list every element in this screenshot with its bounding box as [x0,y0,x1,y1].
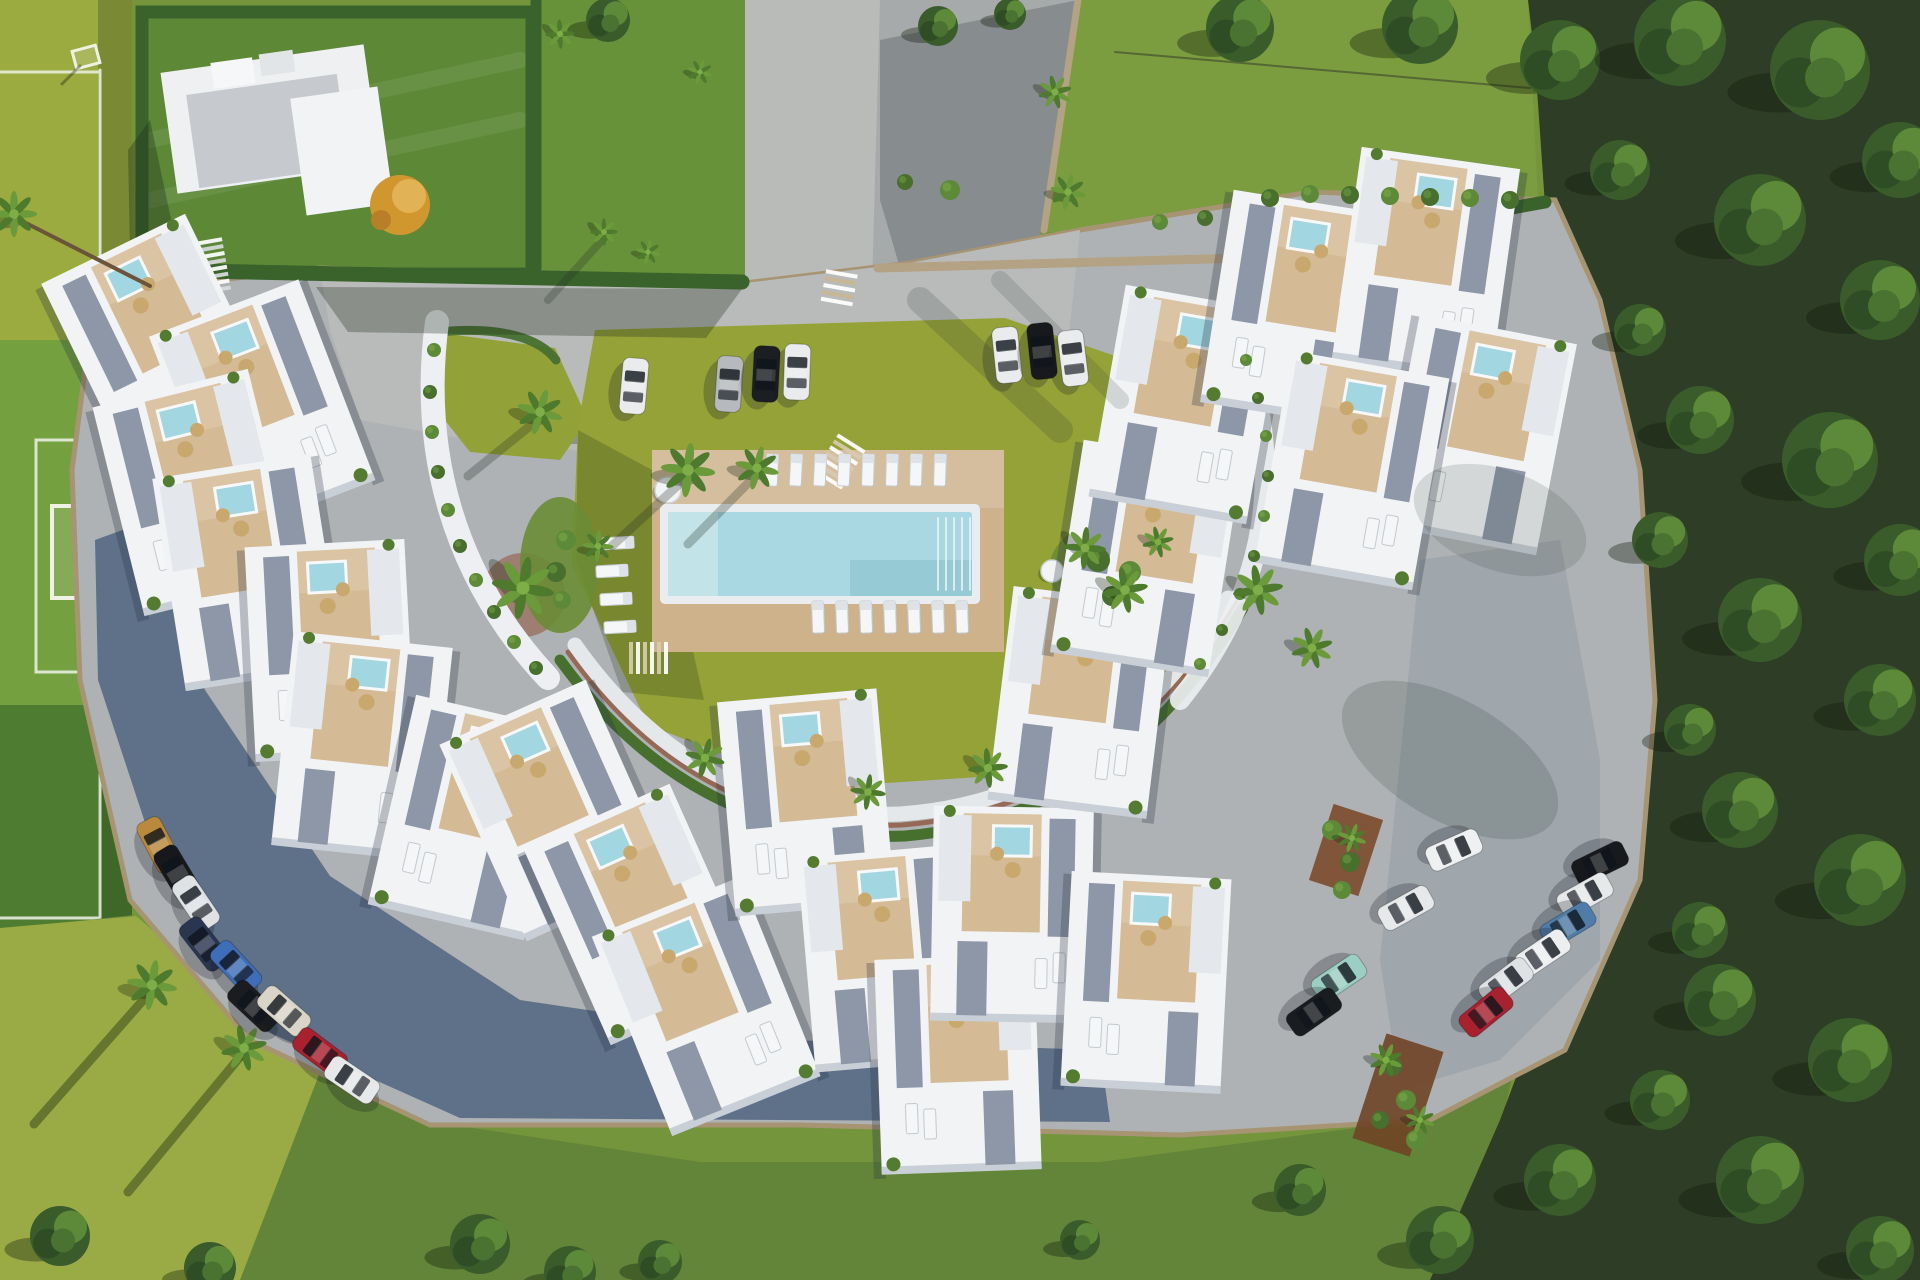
gravel-roof [893,969,923,1088]
sun-lounger [907,601,920,633]
bush [453,539,467,553]
bush [1461,189,1479,207]
bush [423,385,437,399]
bush [1194,658,1206,670]
bush [1340,852,1360,872]
sun-lounger [931,601,944,633]
bush [1341,186,1359,204]
sun-lounger [596,564,629,578]
bush [1421,188,1439,206]
bush [1261,189,1279,207]
bush [1252,392,1264,404]
sun-lounger [883,601,896,633]
bush [897,174,913,190]
bush [1260,430,1272,442]
sun-lounger [604,620,637,634]
bush [1371,1111,1389,1129]
bush [469,573,483,587]
bush [1152,214,1168,230]
sun-lounger [600,592,633,606]
bush [507,635,521,649]
bush [1301,185,1319,203]
bush [427,343,441,357]
sun-lounger [955,601,968,633]
sun-lounger [933,454,946,486]
bush [1216,624,1228,636]
bush [553,591,571,609]
bush [1262,470,1274,482]
bush [1258,510,1270,522]
bush [1248,550,1260,562]
sun-lounger [813,454,827,487]
bush [529,661,543,675]
bush [487,605,501,619]
bush [1396,1090,1416,1110]
bush [425,425,439,439]
bush [1381,187,1399,205]
aerial-site-plan [0,0,1920,1280]
sun-lounger [835,601,848,633]
bush [1333,881,1351,899]
aerial-render-view [0,0,1920,1280]
bush [546,562,566,582]
bush [556,530,576,550]
sun-lounger [811,601,824,633]
sun-lounger [859,601,872,633]
sun-lounger [861,454,874,486]
sun-lounger [909,454,922,486]
sun-lounger [789,454,803,487]
apartment-unit [1052,870,1231,1098]
bush [1197,210,1213,226]
bush [1240,354,1252,366]
bush [940,180,960,200]
bush [1501,191,1519,209]
sun-lounger [885,454,898,486]
bush [431,465,445,479]
sun-lounger [837,454,851,487]
bush [441,503,455,517]
